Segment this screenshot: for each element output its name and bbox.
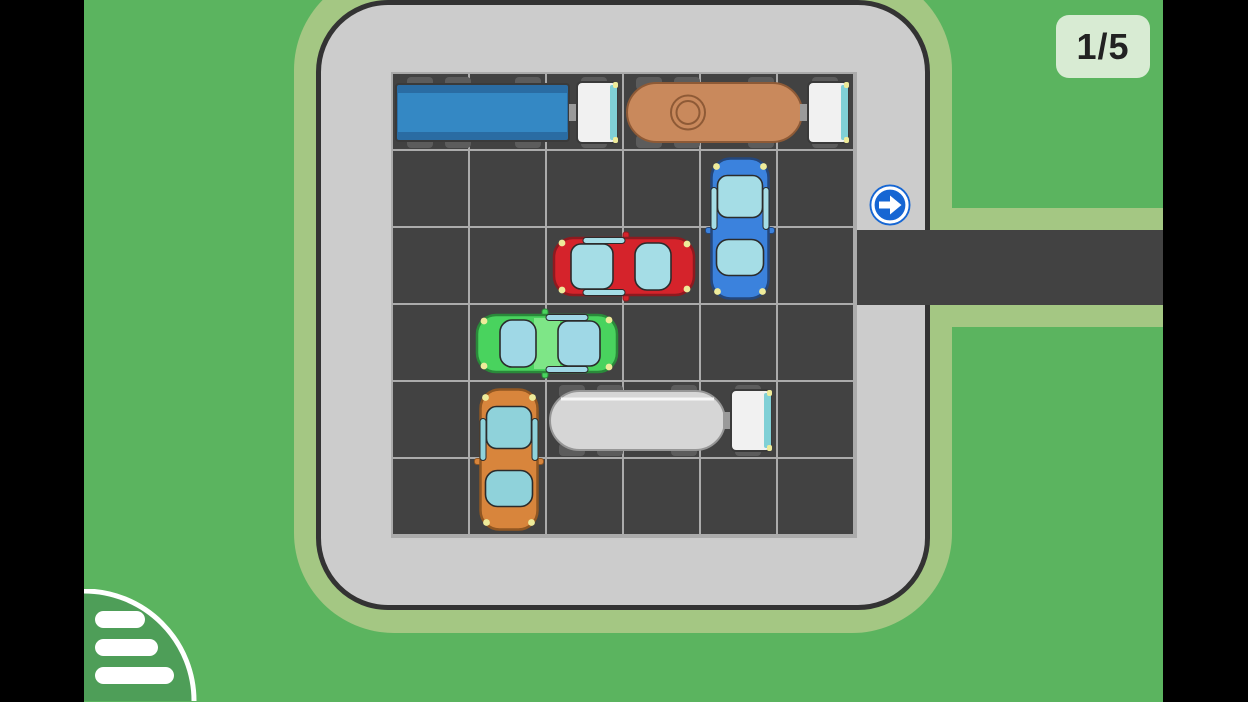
letterbox-right: [1163, 0, 1248, 702]
letterbox-left: [0, 0, 84, 702]
arrow-right-icon: [868, 183, 912, 227]
vehicle-blue-car[interactable]: [701, 151, 778, 305]
vehicle-red-car[interactable]: [547, 228, 701, 305]
level-indicator: 1/5: [1056, 15, 1150, 78]
vehicle-brown-tanker-truck[interactable]: [624, 74, 855, 151]
vehicle-green-car[interactable]: [470, 305, 624, 382]
vehicle-white-tanker-truck[interactable]: [547, 382, 778, 459]
game-stage: 1/5: [0, 0, 1248, 702]
menu-button[interactable]: [84, 589, 198, 702]
hamburger-menu-icon: [84, 589, 198, 702]
exit-arrow-button[interactable]: [868, 183, 912, 227]
vehicle-orange-car[interactable]: [470, 382, 547, 536]
exit-road: [853, 230, 1163, 305]
vehicle-blue-truck[interactable]: [393, 74, 624, 151]
